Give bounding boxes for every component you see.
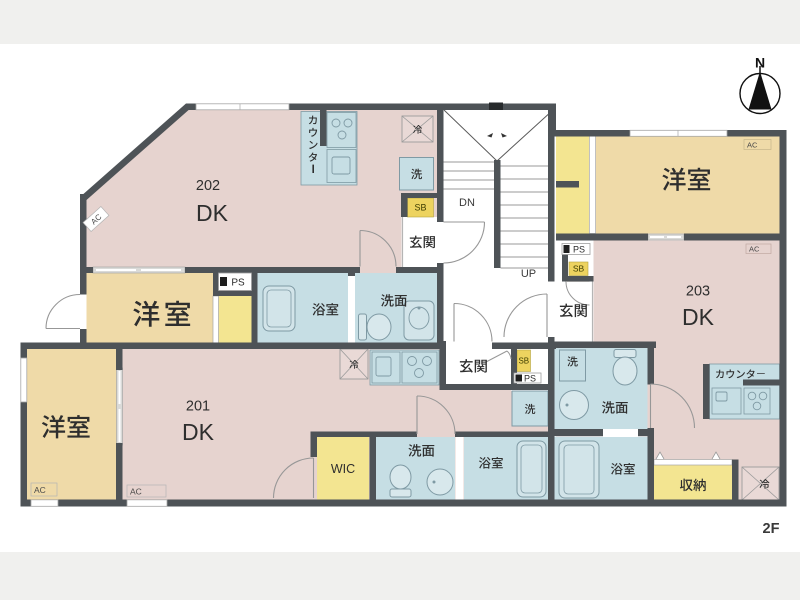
svg-text:PS: PS (573, 245, 585, 255)
svg-text:AC: AC (130, 487, 142, 497)
svg-text:PS: PS (524, 374, 536, 384)
svg-text:DK: DK (682, 304, 715, 330)
svg-text:PS: PS (231, 278, 245, 289)
svg-text:AC: AC (34, 485, 46, 495)
svg-text:SB: SB (414, 203, 426, 213)
svg-text:N: N (755, 55, 765, 71)
svg-text:203: 203 (686, 284, 710, 300)
svg-text:AC: AC (749, 245, 760, 254)
svg-text:DK: DK (182, 419, 215, 445)
svg-text:WIC: WIC (331, 462, 355, 476)
svg-text:SB: SB (518, 357, 529, 366)
svg-text:DN: DN (459, 197, 475, 209)
svg-text:SB: SB (573, 264, 585, 274)
svg-text:UP: UP (521, 268, 536, 280)
svg-text:DK: DK (196, 200, 229, 226)
svg-text:2F: 2F (763, 521, 780, 537)
svg-text:201: 201 (186, 399, 210, 415)
svg-text:AC: AC (747, 141, 758, 150)
svg-text:202: 202 (196, 178, 220, 194)
